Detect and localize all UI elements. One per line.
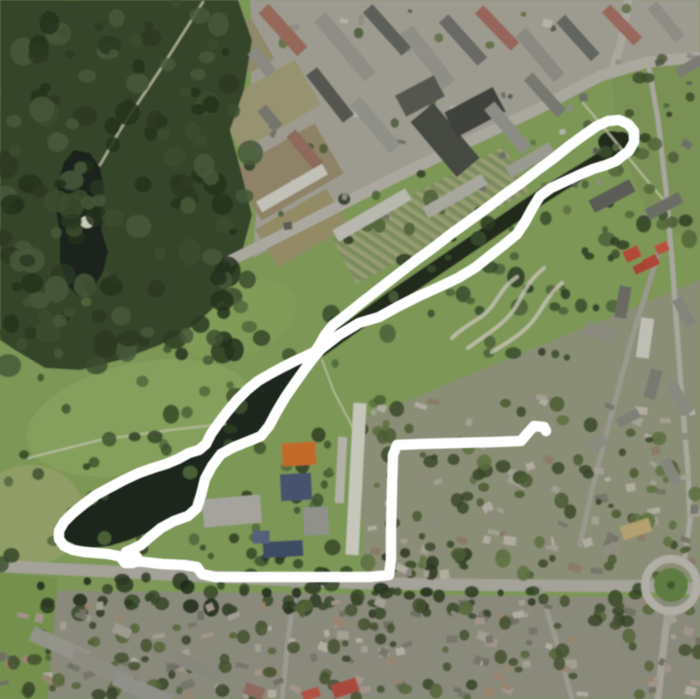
satellite-imagery bbox=[0, 0, 700, 699]
map-viewport[interactable] bbox=[0, 0, 700, 699]
satellite-map bbox=[0, 0, 700, 699]
parking-lot bbox=[202, 495, 262, 528]
